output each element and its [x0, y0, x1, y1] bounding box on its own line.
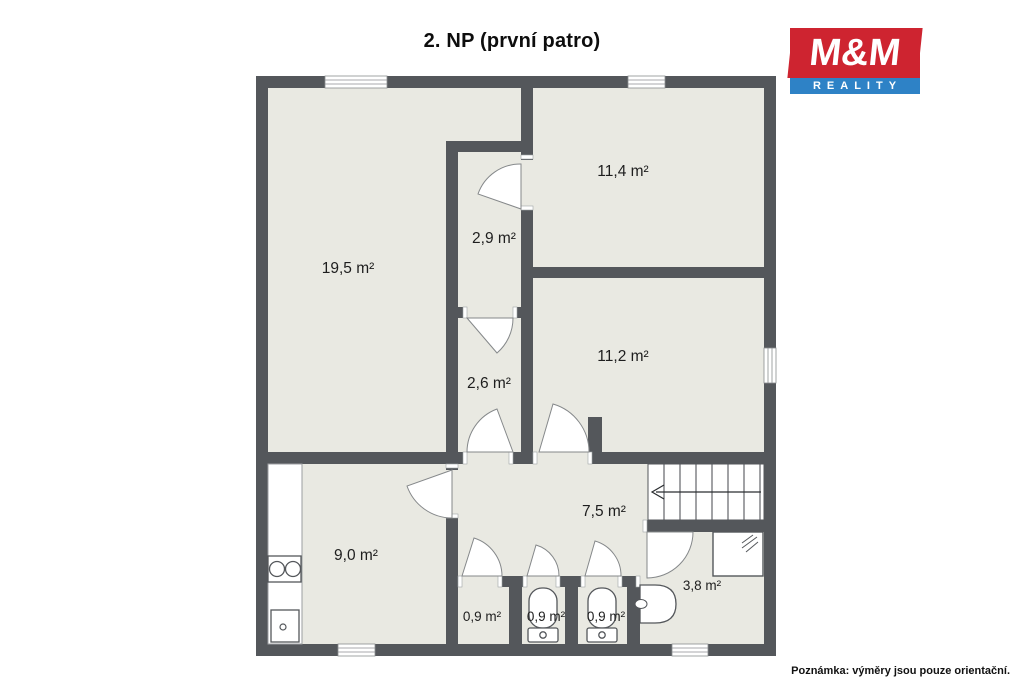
- floorplan-page: 2. NP (první patro) M&M REALITY: [0, 0, 1024, 683]
- room-label-11-2: 11,2 m²: [597, 348, 648, 365]
- washbasin-tap: [635, 600, 647, 609]
- room-label-wc1: 0,9 m²: [463, 609, 502, 624]
- room-label-2-6: 2,6 m²: [467, 375, 511, 392]
- kitchen-sink: [271, 610, 299, 642]
- room-label-7-5: 7,5 m²: [582, 503, 626, 520]
- room-label-9-0: 9,0 m²: [334, 547, 378, 564]
- window-top-right: [628, 76, 665, 88]
- room-label-wc3: 0,9 m²: [587, 609, 626, 624]
- staircase: [648, 464, 764, 520]
- room-label-3-8: 3,8 m²: [683, 578, 722, 593]
- logo-mm-text: M&M: [787, 28, 922, 78]
- room-label-11-4: 11,4 m²: [597, 163, 648, 180]
- window-bottom-kitchen: [338, 644, 375, 656]
- logo-red-box: M&M: [790, 28, 920, 78]
- window-top-left: [325, 76, 387, 88]
- floorplan-drawing: 19,5 m² 2,9 m² 11,4 m² 11,2 m² 2,6 m² 7,…: [0, 0, 1024, 683]
- room-label-wc2: 0,9 m²: [527, 609, 566, 624]
- kitchen-fixtures: [268, 464, 302, 644]
- disclaimer-note: Poznámka: výměry jsou pouze orientační.: [791, 665, 1010, 677]
- room-label-2-9: 2,9 m²: [472, 230, 516, 247]
- mm-reality-logo: M&M REALITY: [790, 28, 920, 94]
- window-bottom-bath: [672, 644, 708, 656]
- toilet-button: [540, 632, 546, 638]
- window-right: [764, 348, 776, 383]
- room-label-19-5: 19,5 m²: [322, 260, 375, 277]
- logo-reality-text: REALITY: [790, 78, 920, 94]
- toilet-button: [599, 632, 605, 638]
